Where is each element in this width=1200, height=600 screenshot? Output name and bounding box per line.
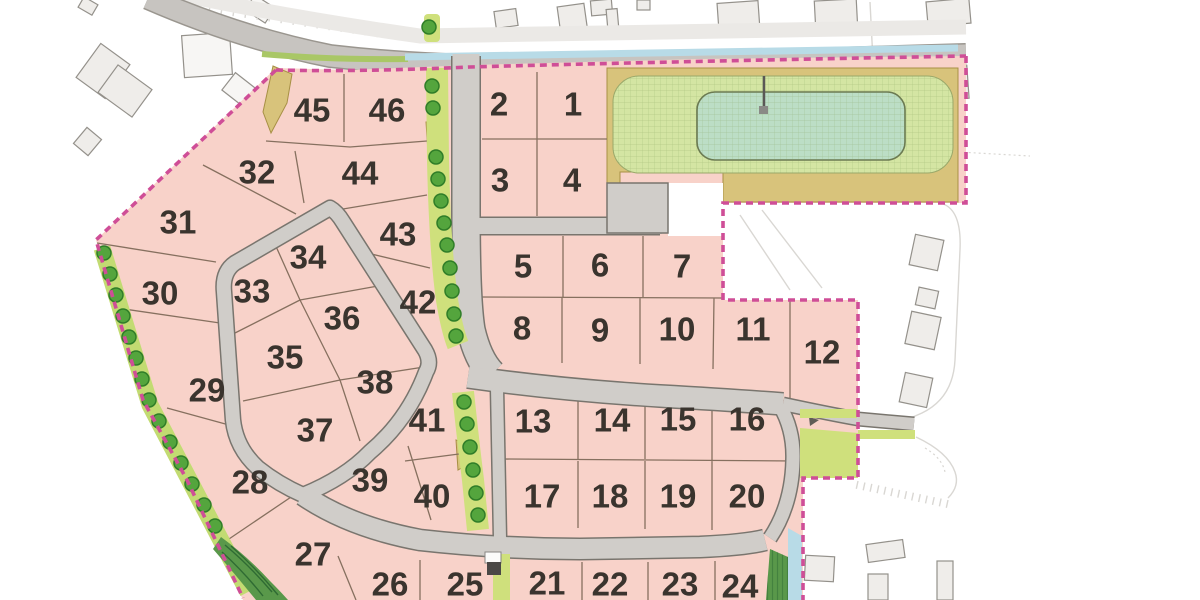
existing-plot-cutout <box>668 183 723 236</box>
lot-label-4: 4 <box>563 162 582 199</box>
lot-label-42: 42 <box>400 284 437 321</box>
site-plan-map: 1234567891011121314151617181920212223242… <box>0 0 1200 600</box>
lot-label-38: 38 <box>357 364 394 401</box>
lot-label-26: 26 <box>372 566 409 600</box>
lot-label-9: 9 <box>591 312 609 349</box>
tree-icon <box>440 238 454 252</box>
lot-label-22: 22 <box>592 566 629 600</box>
tree-icon <box>443 261 457 275</box>
existing-building <box>73 127 101 155</box>
lot-label-10: 10 <box>659 311 696 348</box>
lot-label-33: 33 <box>234 273 271 310</box>
lot-label-27: 27 <box>295 536 332 573</box>
shared-drive <box>497 388 500 538</box>
lot-label-19: 19 <box>660 478 697 515</box>
lot-label-8: 8 <box>513 310 531 347</box>
lot-label-43: 43 <box>380 216 417 253</box>
lot-label-3: 3 <box>491 162 509 199</box>
lot-label-28: 28 <box>232 464 269 501</box>
tree-icon <box>429 150 443 164</box>
lot-label-40: 40 <box>414 478 451 515</box>
lot-label-36: 36 <box>324 300 361 337</box>
lot-label-14: 14 <box>594 402 631 439</box>
existing-building <box>866 540 905 563</box>
lot-label-7: 7 <box>673 248 691 285</box>
lot-label-25: 25 <box>447 566 484 600</box>
lot-label-15: 15 <box>660 401 697 438</box>
lot-label-20: 20 <box>729 478 766 515</box>
tree-icon <box>469 486 483 500</box>
lot-label-1: 1 <box>564 86 582 123</box>
tree-icon <box>457 395 471 409</box>
lot-label-13: 13 <box>515 403 552 440</box>
pond-inner-hatch <box>697 92 905 160</box>
lot-label-18: 18 <box>592 478 629 515</box>
lot-label-45: 45 <box>294 92 331 129</box>
lot-label-11: 11 <box>736 311 771 348</box>
tree-icon <box>425 79 439 93</box>
tree-icon <box>449 329 463 343</box>
lot-label-17: 17 <box>524 478 561 515</box>
lot-label-6: 6 <box>591 247 609 284</box>
lot-label-39: 39 <box>352 462 389 499</box>
existing-building <box>905 311 941 350</box>
existing-building <box>915 287 938 309</box>
existing-building <box>637 0 650 10</box>
tree-icon <box>431 172 445 186</box>
tree-icon <box>466 463 480 477</box>
lot-label-37: 37 <box>297 412 334 449</box>
existing-building <box>937 561 953 600</box>
water-strip-southeast <box>788 528 802 600</box>
lot-label-44: 44 <box>342 155 379 192</box>
existing-building <box>494 9 518 29</box>
lot-label-24: 24 <box>722 568 759 600</box>
existing-building <box>899 372 933 407</box>
lot-label-30: 30 <box>142 275 179 312</box>
tree-icon <box>437 216 451 230</box>
lot-label-12: 12 <box>804 334 841 371</box>
tree-icon <box>426 101 440 115</box>
stub-verge-south <box>858 430 915 439</box>
existing-building <box>804 555 834 581</box>
existing-track-curve-inner <box>925 448 945 472</box>
lot-label-29: 29 <box>189 372 226 409</box>
lot-label-21: 21 <box>529 565 566 600</box>
lot-label-46: 46 <box>369 92 406 129</box>
pond <box>613 76 953 173</box>
lot-label-35: 35 <box>267 339 304 376</box>
turning-head <box>607 183 668 233</box>
tree-icon <box>434 194 448 208</box>
tree-icon <box>463 440 477 454</box>
existing-building <box>868 574 888 600</box>
lot-label-31: 31 <box>160 204 197 241</box>
lot-label-5: 5 <box>514 248 532 285</box>
stub-verge-north <box>800 409 857 418</box>
tree-icon <box>471 508 485 522</box>
utility-box-icon <box>485 552 501 575</box>
tree-icon <box>460 417 474 431</box>
hatch-ticks <box>856 481 948 508</box>
lot-label-32: 32 <box>239 154 276 191</box>
lot-label-34: 34 <box>290 239 327 276</box>
stub-green-area <box>800 428 858 478</box>
existing-building <box>78 0 98 15</box>
tree-icon <box>447 307 461 321</box>
cutout-hatch <box>740 210 822 290</box>
lot-label-23: 23 <box>662 566 699 600</box>
lot-label-16: 16 <box>729 401 766 438</box>
lot-label-2: 2 <box>490 86 508 123</box>
existing-building <box>909 234 944 270</box>
existing-track-curve <box>916 437 956 498</box>
tree-icon <box>445 284 459 298</box>
tree-icon <box>422 20 436 34</box>
pond-inlet-headwall-icon <box>759 106 768 114</box>
lot-label-41: 41 <box>409 402 446 439</box>
site-plan-canvas: 1234567891011121314151617181920212223242… <box>0 0 1200 600</box>
